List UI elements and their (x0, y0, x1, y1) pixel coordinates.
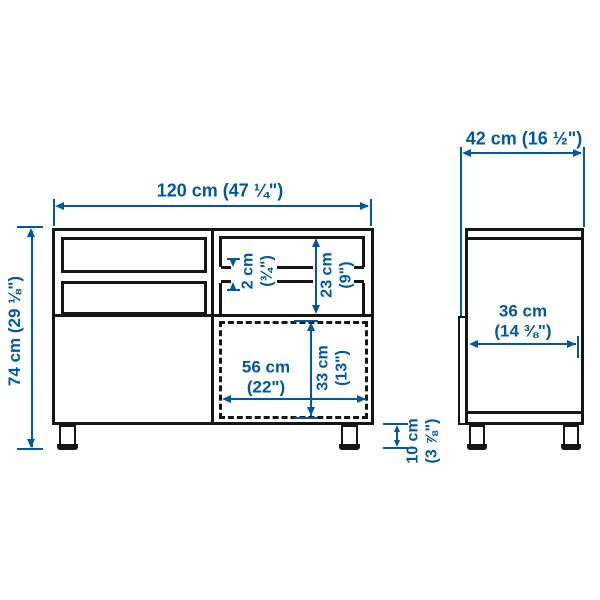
drawer-front-bottom (61, 281, 207, 315)
total-depth-label: 42 cm (16 ½") (466, 129, 583, 150)
side-leg-right (563, 425, 579, 446)
dimension-line (224, 398, 366, 400)
arrowhead-down-icon (27, 439, 35, 448)
arrowhead-right-icon (567, 340, 576, 348)
dimension-line (57, 205, 368, 207)
arrowhead-left-icon (55, 202, 64, 210)
arrowhead-left-icon (462, 149, 471, 157)
drawer-width-label: 56 cm (22") (242, 357, 290, 396)
arrowhead-up-icon (27, 228, 35, 237)
dimension-diagram: 120 cm (47 ¼") 74 cm (29 ⅛") 2 cm (¾") 2… (0, 0, 600, 600)
compartment-top-edge (219, 236, 365, 239)
interior-depth-metric: 36 cm (494, 301, 551, 321)
drawer-height-imperial: (13") (333, 345, 352, 390)
arrowhead-up-icon (230, 282, 236, 289)
dimension-line (471, 343, 576, 345)
shelf-thickness-metric: 2 cm (239, 253, 258, 289)
shelf-thickness-label: 2 cm (¾") (239, 253, 276, 289)
drawer-height-label: 33 cm (13") (314, 345, 351, 390)
compartment-right-wall-lower (362, 283, 365, 314)
compartment-right-wall-upper (362, 236, 365, 267)
extension-tick (17, 448, 43, 450)
arrowhead-down-icon (394, 440, 400, 447)
shelf-top-edge (277, 266, 313, 269)
compartment-left-wall-lower (219, 283, 222, 314)
drawer-front-top (61, 237, 207, 273)
side-leg-left (469, 425, 485, 446)
side-door-front-edge (458, 316, 467, 425)
extension-tick (294, 417, 318, 419)
extension-tick (227, 289, 240, 291)
dimension-line (310, 324, 312, 416)
dimension-line (464, 152, 581, 154)
extension-line (370, 199, 372, 226)
dimension-line (315, 240, 317, 312)
compartment-height-metric: 23 cm (318, 252, 337, 297)
arrowhead-right-icon (360, 202, 369, 210)
compartment-height-label: 23 cm (9") (318, 252, 355, 297)
side-top-panel-edge (467, 237, 582, 240)
compartment-height-imperial: (9") (337, 252, 356, 297)
shelf-bottom-edge (277, 280, 313, 283)
side-bottom-panel-edge (467, 411, 582, 414)
arrowhead-up-icon (394, 425, 400, 432)
arrowhead-right-icon (357, 395, 366, 403)
dimension-line (31, 231, 33, 447)
extension-line (460, 147, 462, 316)
drawer-width-imperial: (22") (242, 377, 290, 397)
drawer-width-metric: 56 cm (242, 357, 290, 377)
front-leg-right-foot (339, 444, 360, 450)
leg-height-imperial: (3 ⅞") (423, 418, 442, 463)
arrowhead-down-icon (307, 407, 315, 416)
arrowhead-left-icon (222, 395, 231, 403)
front-leg-left-foot (57, 444, 78, 450)
cabinet-vertical-divider (211, 230, 214, 423)
extension-line (583, 147, 585, 227)
total-width-label: 120 cm (47 ¼") (157, 181, 284, 202)
arrowhead-down-icon (230, 260, 236, 267)
side-leg-left-foot (467, 444, 487, 450)
arrowhead-right-icon (573, 149, 582, 157)
side-leg-right-foot (561, 444, 581, 450)
arrowhead-up-icon (307, 322, 315, 331)
extension-tick (577, 336, 579, 358)
drawer-height-metric: 33 cm (314, 345, 333, 390)
shelf-thickness-imperial: (¾") (258, 253, 277, 289)
interior-depth-label: 36 cm (14 ⅜") (494, 301, 551, 340)
front-leg-right (341, 425, 358, 446)
leg-height-label: 10 cm (3 ⅞") (404, 418, 441, 463)
arrowhead-up-icon (312, 238, 320, 247)
arrowhead-left-icon (469, 340, 478, 348)
total-height-label: 74 cm (29 ⅛") (5, 276, 25, 386)
compartment-left-wall-upper (219, 236, 222, 267)
arrowhead-down-icon (312, 305, 320, 314)
front-leg-left (59, 425, 76, 446)
leg-height-metric: 10 cm (404, 418, 423, 463)
interior-depth-imperial: (14 ⅜") (494, 321, 551, 341)
